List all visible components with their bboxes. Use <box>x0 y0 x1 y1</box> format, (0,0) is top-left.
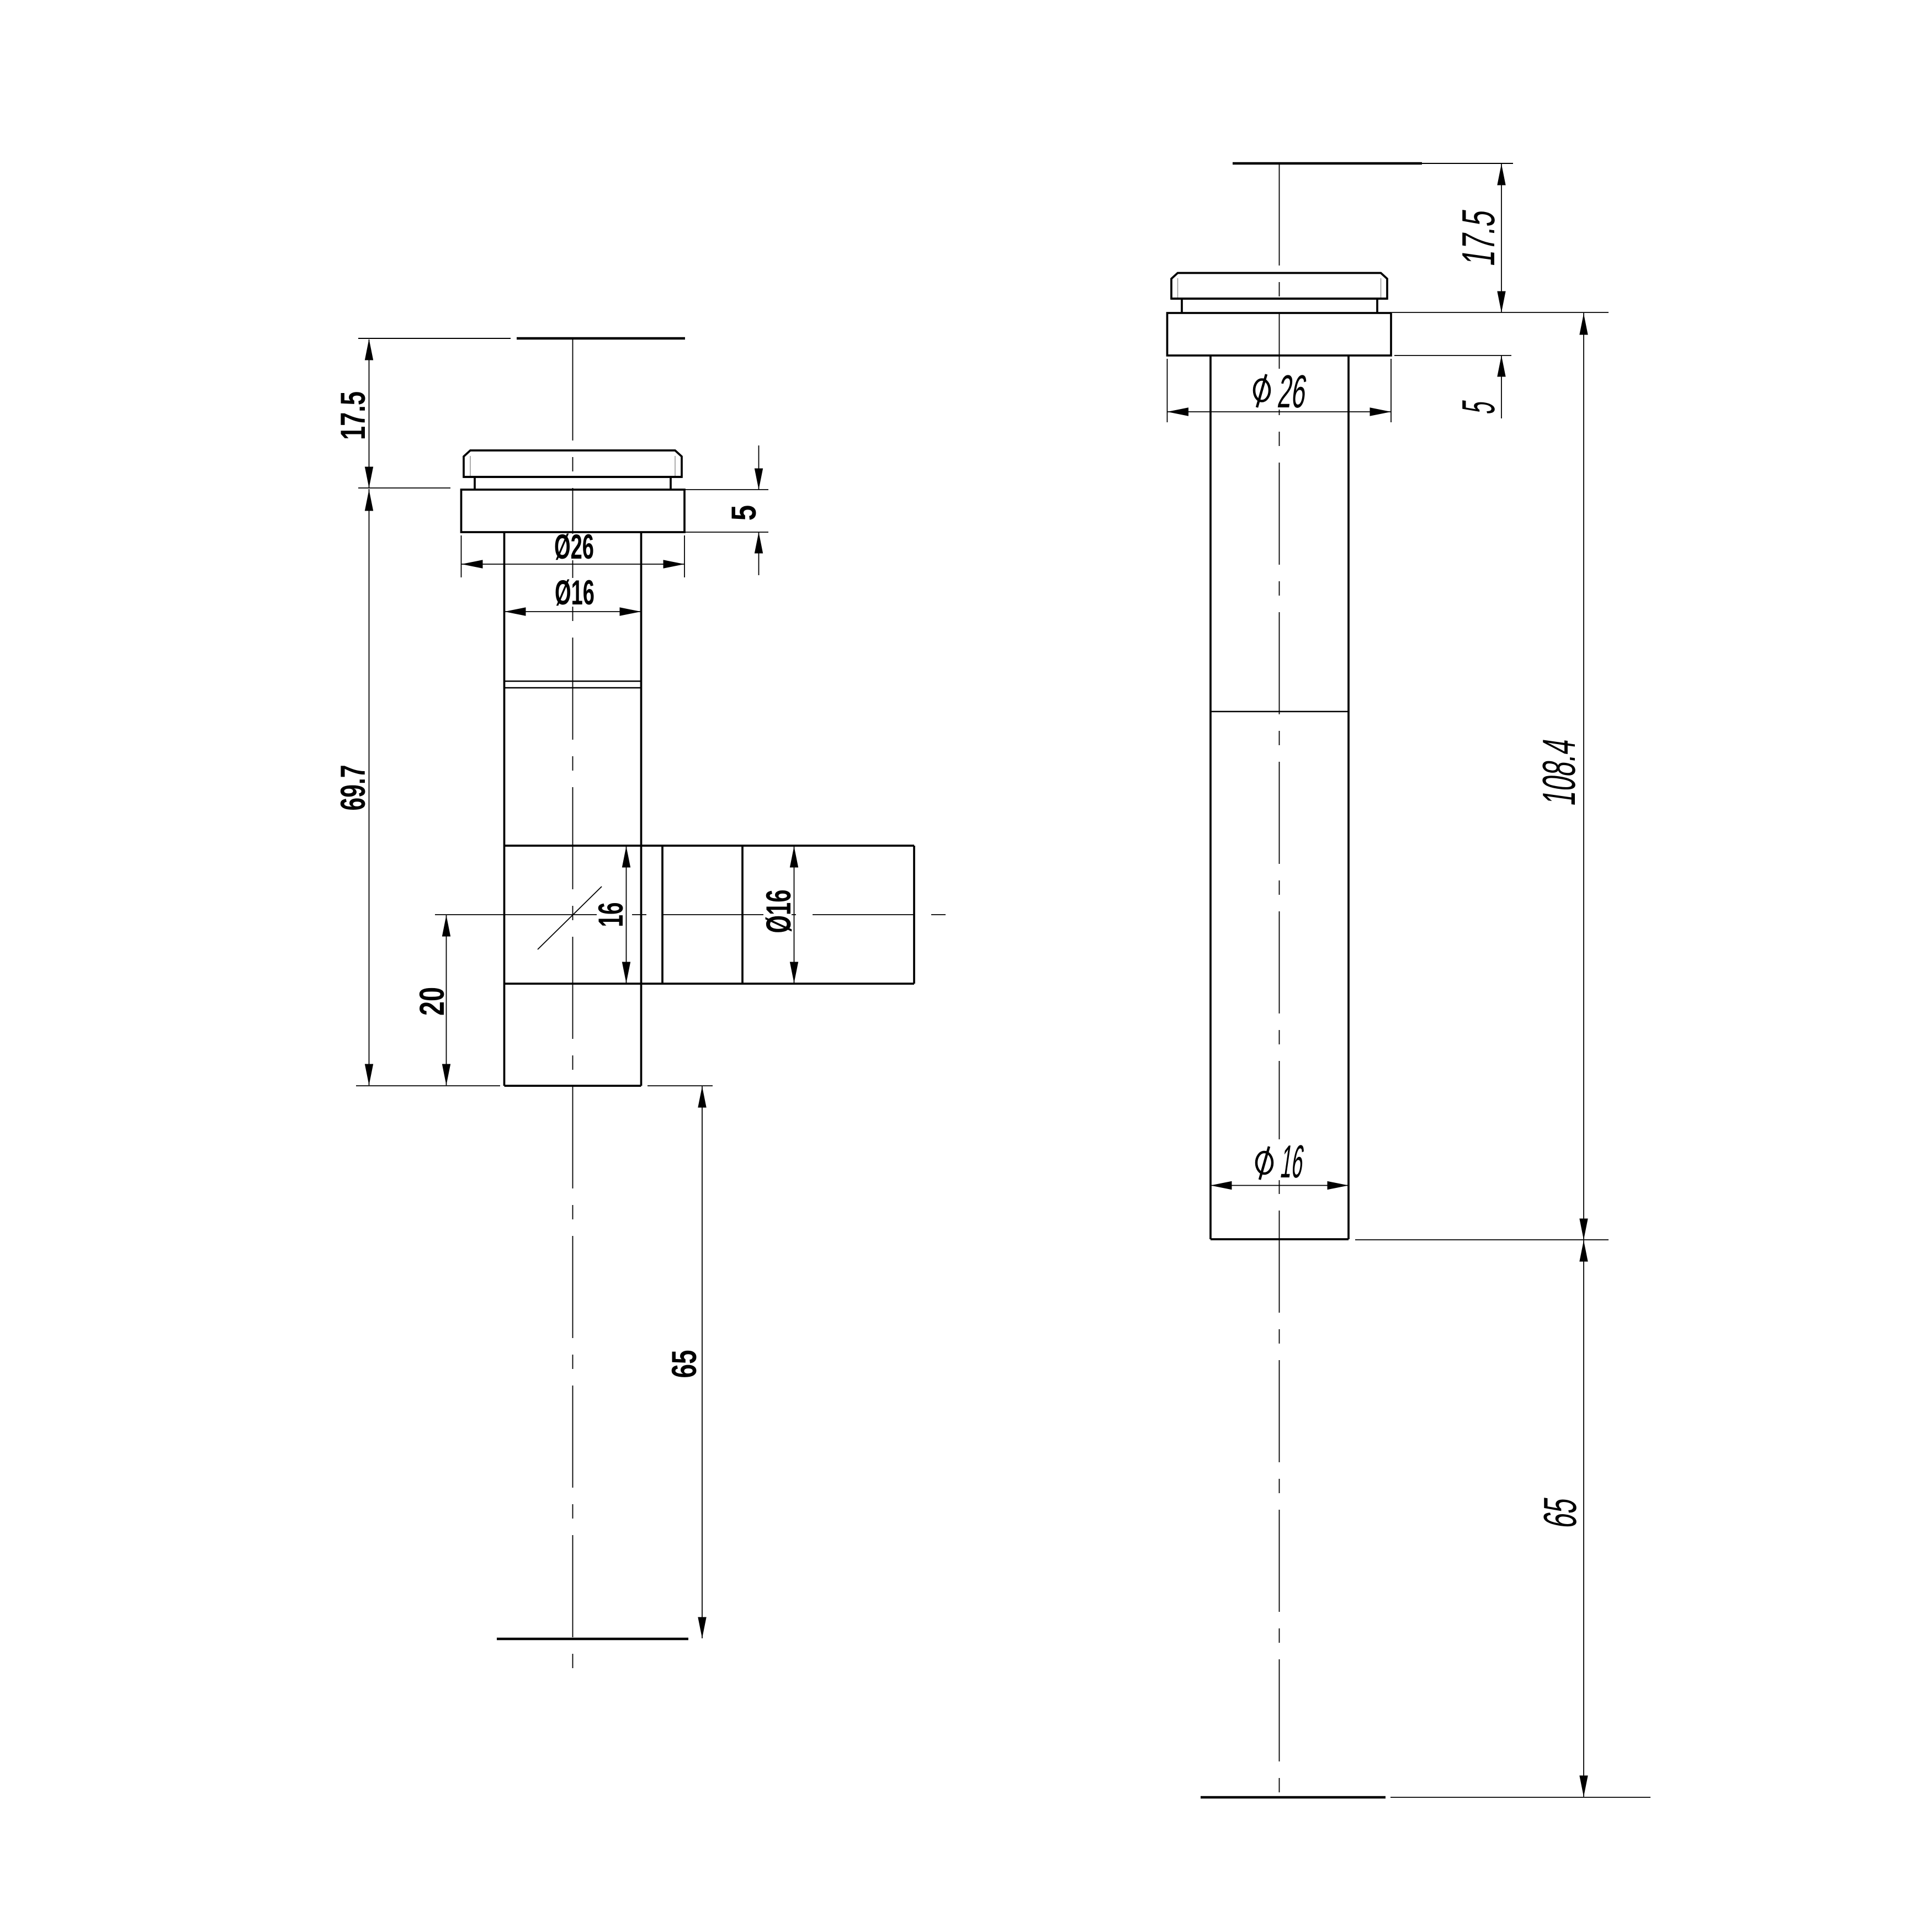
svg-text:17.5: 17.5 <box>1452 206 1504 268</box>
svg-text:16: 16 <box>592 903 630 927</box>
svg-text:17.5: 17.5 <box>334 391 373 440</box>
svg-text:20: 20 <box>413 987 452 1016</box>
svg-text:Ø16: Ø16 <box>555 574 595 612</box>
svg-text:108.4: 108.4 <box>1533 735 1585 808</box>
svg-text:69.7: 69.7 <box>334 765 373 811</box>
svg-text:5: 5 <box>725 505 763 521</box>
svg-text:Ø16: Ø16 <box>760 890 798 933</box>
svg-text:Ø26: Ø26 <box>554 528 594 566</box>
svg-text:65: 65 <box>665 1350 704 1378</box>
